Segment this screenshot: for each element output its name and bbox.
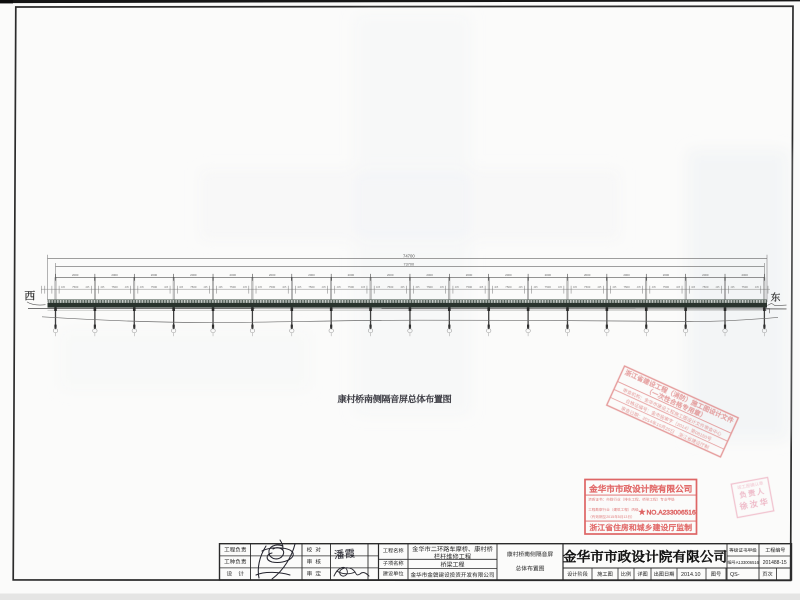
svg-text:2000: 2000 — [702, 273, 709, 277]
svg-text:405: 405 — [691, 286, 696, 289]
svg-text:405: 405 — [100, 286, 105, 289]
svg-text:405: 405 — [400, 286, 405, 289]
svg-text:405: 405 — [494, 286, 499, 289]
svg-text:405: 405 — [415, 286, 420, 289]
svg-text:2014.10: 2014.10 — [681, 572, 701, 578]
svg-text:405: 405 — [322, 286, 327, 289]
svg-text:201488-15: 201488-15 — [763, 560, 787, 566]
svg-text:2000: 2000 — [308, 273, 315, 277]
svg-text:73700: 73700 — [404, 263, 415, 267]
svg-text:405: 405 — [85, 286, 90, 289]
svg-text:7500: 7500 — [230, 285, 237, 289]
svg-text:7500: 7500 — [190, 285, 197, 289]
svg-text:7500: 7500 — [545, 285, 552, 289]
svg-text:405: 405 — [534, 286, 539, 289]
svg-text:2000: 2000 — [387, 273, 394, 277]
svg-text:7500: 7500 — [702, 285, 709, 289]
svg-text:7500: 7500 — [427, 285, 434, 289]
svg-text:2000: 2000 — [151, 273, 158, 277]
svg-text:2000: 2000 — [741, 273, 748, 277]
svg-text:405: 405 — [652, 286, 657, 289]
svg-text:7500: 7500 — [584, 285, 591, 289]
svg-text:405: 405 — [440, 286, 445, 289]
svg-text:7500: 7500 — [269, 285, 276, 289]
svg-text:405: 405 — [258, 286, 263, 289]
svg-text:405: 405 — [558, 286, 563, 289]
svg-text:405: 405 — [361, 286, 366, 289]
svg-text:7500: 7500 — [466, 285, 473, 289]
svg-text:7500: 7500 — [151, 285, 158, 289]
svg-text:2000: 2000 — [111, 273, 118, 277]
svg-text:2000: 2000 — [190, 273, 197, 277]
svg-text:2000: 2000 — [348, 273, 355, 277]
svg-text:405: 405 — [282, 286, 287, 289]
svg-text:405: 405 — [61, 286, 66, 289]
svg-text:405: 405 — [179, 286, 184, 289]
svg-text:74700: 74700 — [403, 253, 415, 258]
svg-text:7500: 7500 — [348, 285, 355, 289]
svg-text:2000: 2000 — [545, 273, 552, 277]
svg-text:2014: 2014 — [676, 422, 688, 431]
svg-text:405: 405 — [164, 286, 169, 289]
svg-text:7500: 7500 — [72, 285, 79, 289]
svg-text:405: 405 — [297, 286, 302, 289]
svg-text:405: 405 — [243, 286, 248, 289]
svg-text:405: 405 — [337, 286, 342, 289]
svg-text:405: 405 — [455, 286, 460, 289]
svg-text:7500: 7500 — [623, 285, 630, 289]
svg-text:5: 5 — [618, 515, 620, 519]
svg-text:405: 405 — [612, 286, 617, 289]
svg-text:405: 405 — [716, 286, 721, 289]
svg-text:405: 405 — [219, 286, 224, 289]
svg-text:405: 405 — [731, 286, 736, 289]
svg-text:13: 13 — [623, 515, 627, 519]
svg-text:2000: 2000 — [584, 273, 591, 277]
svg-text:2015: 2015 — [606, 515, 614, 519]
svg-text:7500: 7500 — [387, 285, 394, 289]
svg-text:QS-: QS- — [730, 572, 740, 578]
svg-text:2000: 2000 — [505, 273, 512, 277]
svg-text:405: 405 — [597, 286, 602, 289]
svg-text:405: 405 — [573, 286, 578, 289]
svg-text:405: 405 — [637, 286, 642, 289]
svg-text:2000: 2000 — [663, 273, 670, 277]
svg-text:405: 405 — [479, 286, 484, 289]
svg-text:NO.A233006516: NO.A233006516 — [647, 509, 696, 516]
svg-text:2000: 2000 — [72, 273, 79, 277]
svg-text:405: 405 — [376, 286, 381, 289]
svg-text:405: 405 — [755, 286, 760, 289]
svg-text:2000: 2000 — [230, 273, 237, 277]
svg-text:2000: 2000 — [426, 273, 433, 277]
svg-text:7500: 7500 — [663, 285, 670, 289]
svg-text:2000: 2000 — [623, 273, 630, 277]
svg-text:405: 405 — [140, 286, 145, 289]
svg-text:405: 405 — [519, 286, 524, 289]
svg-text:405: 405 — [204, 286, 209, 289]
svg-text:7500: 7500 — [742, 285, 749, 289]
svg-text:405: 405 — [676, 286, 681, 289]
svg-text:7500: 7500 — [308, 285, 315, 289]
svg-text:7500: 7500 — [505, 285, 512, 289]
svg-text:A133006516: A133006516 — [736, 560, 760, 565]
svg-text:405: 405 — [125, 286, 130, 289]
svg-text:7500: 7500 — [111, 285, 118, 289]
svg-text:2000: 2000 — [466, 273, 473, 277]
svg-text:2000: 2000 — [269, 273, 276, 277]
